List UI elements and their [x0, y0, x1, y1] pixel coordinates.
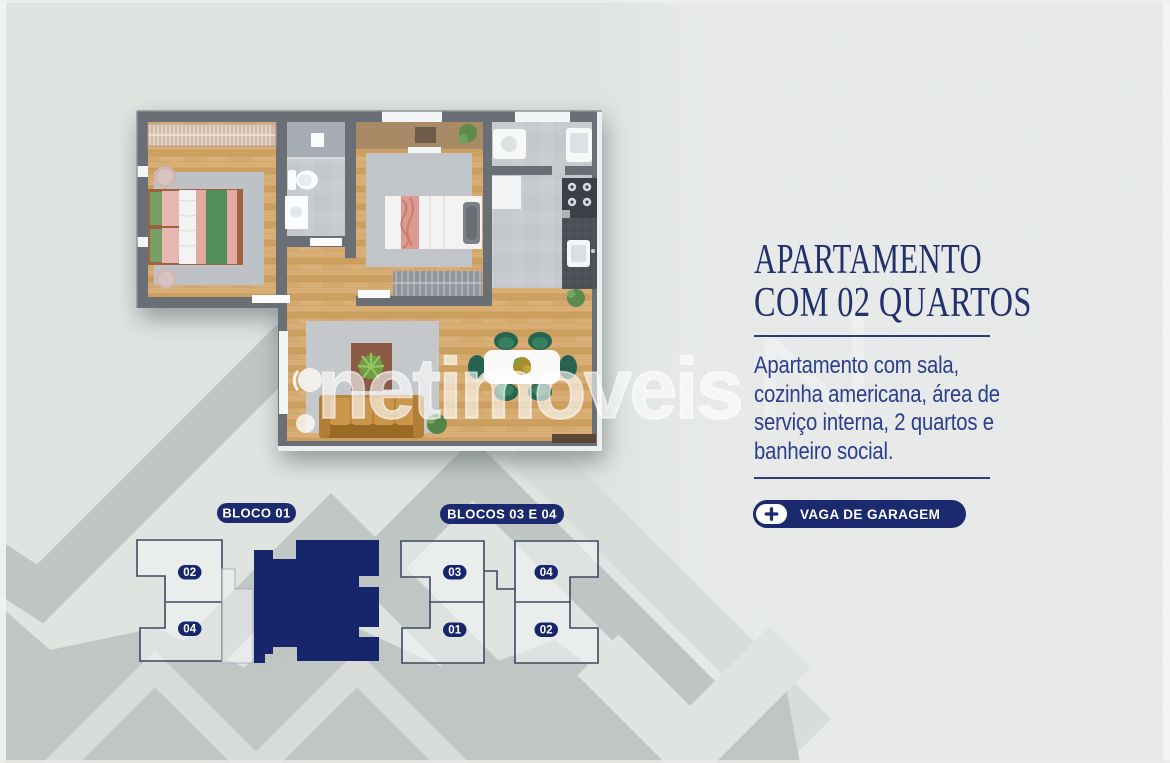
svg-text:02: 02 — [540, 625, 553, 637]
svg-text:04: 04 — [540, 567, 553, 579]
svg-text:01: 01 — [448, 625, 461, 637]
svg-text:03: 03 — [448, 567, 461, 579]
svg-text:04: 04 — [183, 624, 196, 636]
svg-text:BLOCO 01: BLOCO 01 — [222, 506, 290, 521]
svg-text:BLOCOS 03 E 04: BLOCOS 03 E 04 — [447, 507, 557, 522]
svg-text:02: 02 — [183, 567, 196, 579]
